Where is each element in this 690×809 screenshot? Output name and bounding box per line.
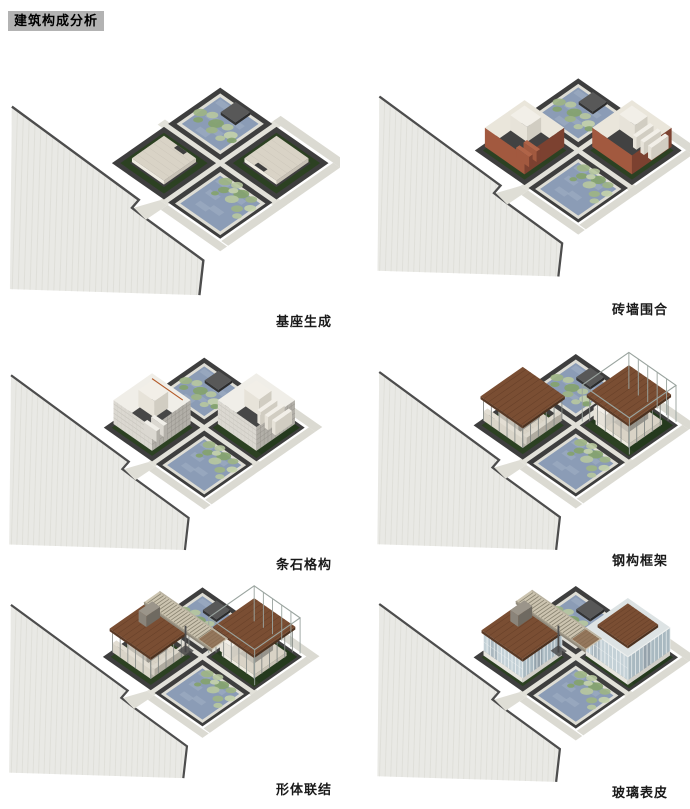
panel-label-stone: 条石格构 — [276, 554, 332, 573]
iso-diagram-2 — [368, 52, 690, 304]
panel-label-glass: 玻璃表皮 — [612, 782, 668, 801]
iso-diagram-1 — [0, 60, 340, 308]
iso-diagram-3 — [0, 332, 340, 562]
iso-diagram-4 — [368, 328, 690, 562]
diagram-glass-skin — [368, 560, 690, 794]
diagram-steel-frame — [368, 328, 690, 562]
page-title: 建筑构成分析 — [8, 11, 104, 31]
panel-label-link: 形体联结 — [276, 779, 332, 798]
iso-diagram-5 — [0, 562, 340, 790]
diagram-brick-enclosure — [368, 52, 690, 304]
diagram-form-connection — [0, 562, 340, 790]
panel-label-steel: 钢构框架 — [612, 550, 668, 569]
panel-label-base: 基座生成 — [276, 311, 332, 330]
diagram-stone-lattice — [0, 332, 340, 562]
diagram-base-generation — [0, 60, 340, 308]
page: 建筑构成分析 基座生成 砖墙围合 条石格构 钢构框架 形体联结 玻璃表皮 — [0, 0, 690, 809]
panel-label-brick: 砖墙围合 — [612, 299, 668, 318]
iso-diagram-6 — [368, 560, 690, 794]
